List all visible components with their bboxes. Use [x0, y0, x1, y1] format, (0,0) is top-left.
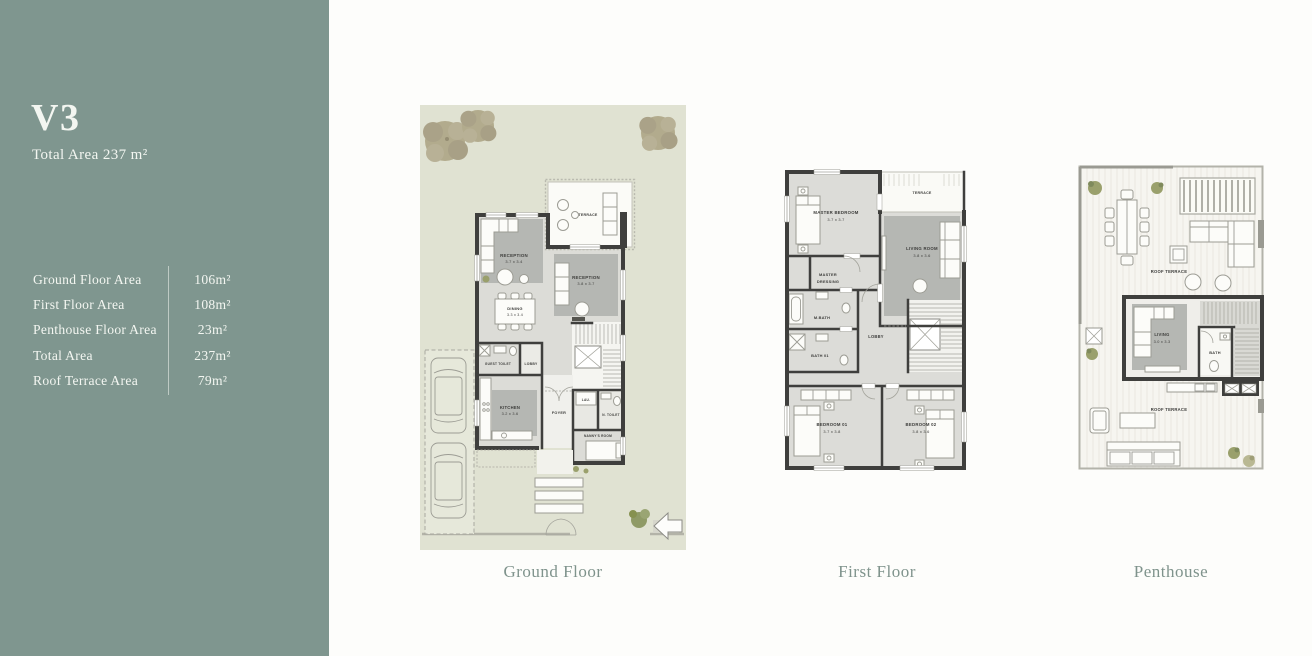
wall-slab	[1258, 220, 1264, 248]
tree-icon	[423, 121, 468, 162]
room-label-master-bedroom: MASTER BEDROOM	[813, 210, 858, 215]
room-label-bedroom-02: BEDROOM 02	[906, 422, 937, 427]
tv-console	[882, 236, 886, 270]
tv-console	[572, 317, 585, 321]
area-row-value: 79m²	[160, 373, 265, 389]
room-label-roof-terrace-upper: ROOF TERRACE	[1151, 269, 1188, 274]
total-area-line: Total Area 237 m²	[32, 147, 148, 164]
caption-penthouse: Penthouse	[1077, 562, 1265, 582]
table-row: Roof Terrace Area 79m²	[33, 369, 273, 394]
sofa	[603, 193, 617, 235]
table-divider	[168, 266, 169, 395]
lounge-chair	[1215, 275, 1231, 291]
tv-console	[1145, 366, 1180, 372]
room-label-master-dressing: MASTER	[819, 272, 837, 277]
room-label-bedroom-01: BEDROOM 01	[817, 422, 848, 427]
entry-steps	[535, 478, 583, 513]
side-table	[572, 212, 579, 219]
room-label-laundry: LAU.	[582, 398, 590, 402]
plant-icon	[584, 469, 589, 474]
table-row: Penthouse Floor Area 23m²	[33, 318, 273, 343]
table-row: Total Area 237m²	[33, 343, 273, 368]
tree-icon	[639, 116, 677, 151]
armchair	[913, 279, 927, 293]
room-label-reception-2: RECEPTION	[572, 275, 600, 280]
area-row-value: 106m²	[160, 272, 265, 288]
area-row-label: Total Area	[33, 348, 160, 364]
room-dims: 3.3 x 3.4	[507, 313, 523, 317]
staircase	[908, 300, 962, 372]
room-label-bath-01: BATH 01	[811, 353, 829, 358]
pergola	[1180, 178, 1255, 214]
area-row-label: Penthouse Floor Area	[33, 322, 160, 338]
room-label-lobby: LOBBY	[524, 362, 538, 366]
room-label-living: LIVING	[1154, 332, 1169, 337]
area-row-label: Ground Floor Area	[33, 272, 160, 288]
room-label-bath: BATH	[1209, 350, 1221, 355]
room-dims: 3.7 x 3.8	[823, 429, 840, 434]
room-label-terrace: TERRACE	[912, 191, 931, 195]
dining-set	[495, 293, 535, 330]
room-dims: 3.8 x 3.7	[577, 281, 594, 286]
armchair	[497, 269, 513, 285]
planter-box	[1086, 328, 1102, 344]
room-label-terrace: TERRACE	[578, 213, 597, 217]
caption-ground-floor: Ground Floor	[420, 562, 686, 582]
chair	[558, 220, 569, 231]
penthouse-plan: ROOF TERRACE LIVING 3.0 x 3.3 BATH ROOF …	[1077, 164, 1265, 472]
plant-icon	[573, 466, 579, 472]
table-row: First Floor Area 108m²	[33, 292, 273, 317]
sidebar-panel: V3 Total Area 237 m² Ground Floor Area 1…	[0, 0, 329, 656]
sofa	[555, 263, 569, 305]
room-label-nanny-toilet: N. TOILET	[602, 413, 620, 417]
bed	[586, 441, 622, 460]
room-dims: 3.2 x 3.6	[502, 412, 519, 416]
room-label-living-room: LIVING ROOM	[906, 246, 938, 251]
plant-icon	[483, 276, 490, 283]
first-floor-plan: TERRACE MASTER BEDROOM 3.7 x 3.7 LIVING …	[784, 166, 970, 474]
room-label-master-bath: M.BATH	[814, 315, 830, 320]
bed	[796, 187, 820, 253]
driveway	[425, 350, 474, 534]
room-label-guest-toilet: GUEST TOILET	[485, 362, 511, 366]
room-label-kitchen: KITCHEN	[500, 405, 520, 410]
unit-title: V3	[31, 96, 80, 140]
armchair	[575, 302, 589, 316]
room-dims: 3.7 x 3.4	[505, 259, 523, 264]
area-row-value: 108m²	[160, 297, 265, 313]
ground-floor-plan: TERRACE RECEPTION 3.7 x 3.4 RECEPTION 3.…	[420, 105, 686, 550]
area-row-label: First Floor Area	[33, 297, 160, 313]
area-row-label: Roof Terrace Area	[33, 373, 160, 389]
room-label-foyer: FOYER	[552, 411, 566, 415]
area-row-value: 23m²	[160, 322, 265, 338]
wall-slab	[1258, 399, 1264, 413]
chair	[558, 200, 569, 211]
room-label-master-dressing: DRESSING	[817, 279, 839, 284]
room-dims: 3.8 x 3.6	[912, 429, 929, 434]
sofa	[940, 222, 960, 278]
room-label-dining: DINING	[507, 306, 523, 311]
side-table	[520, 275, 529, 284]
room-label-reception-1: RECEPTION	[500, 253, 528, 258]
tree-icon	[460, 110, 496, 143]
lobby-zone	[520, 343, 542, 375]
caption-first-floor: First Floor	[784, 562, 970, 582]
room-dims: 3.0 x 3.3	[1154, 340, 1171, 344]
area-row-value: 237m²	[160, 348, 265, 364]
room-label-roof-terrace-lower: ROOF TERRACE	[1151, 407, 1188, 412]
wall-stub	[620, 212, 627, 248]
outdoor-counter	[1167, 383, 1217, 392]
walkway	[537, 450, 573, 474]
floorplan-brochure-page: { "sidebar": { "unit_name": "V3", "total…	[0, 0, 1312, 656]
table-row: Ground Floor Area 106m²	[33, 267, 273, 292]
room-label-nanny-room: NANNY'S ROOM	[584, 434, 612, 438]
room-dims: 3.8 x 3.6	[913, 253, 930, 258]
room-label-lobby: LOBBY	[868, 334, 884, 339]
lounge-chair	[1185, 274, 1201, 290]
area-table: Ground Floor Area 106m² First Floor Area…	[33, 267, 273, 394]
room-dims: 3.7 x 3.7	[827, 217, 844, 222]
